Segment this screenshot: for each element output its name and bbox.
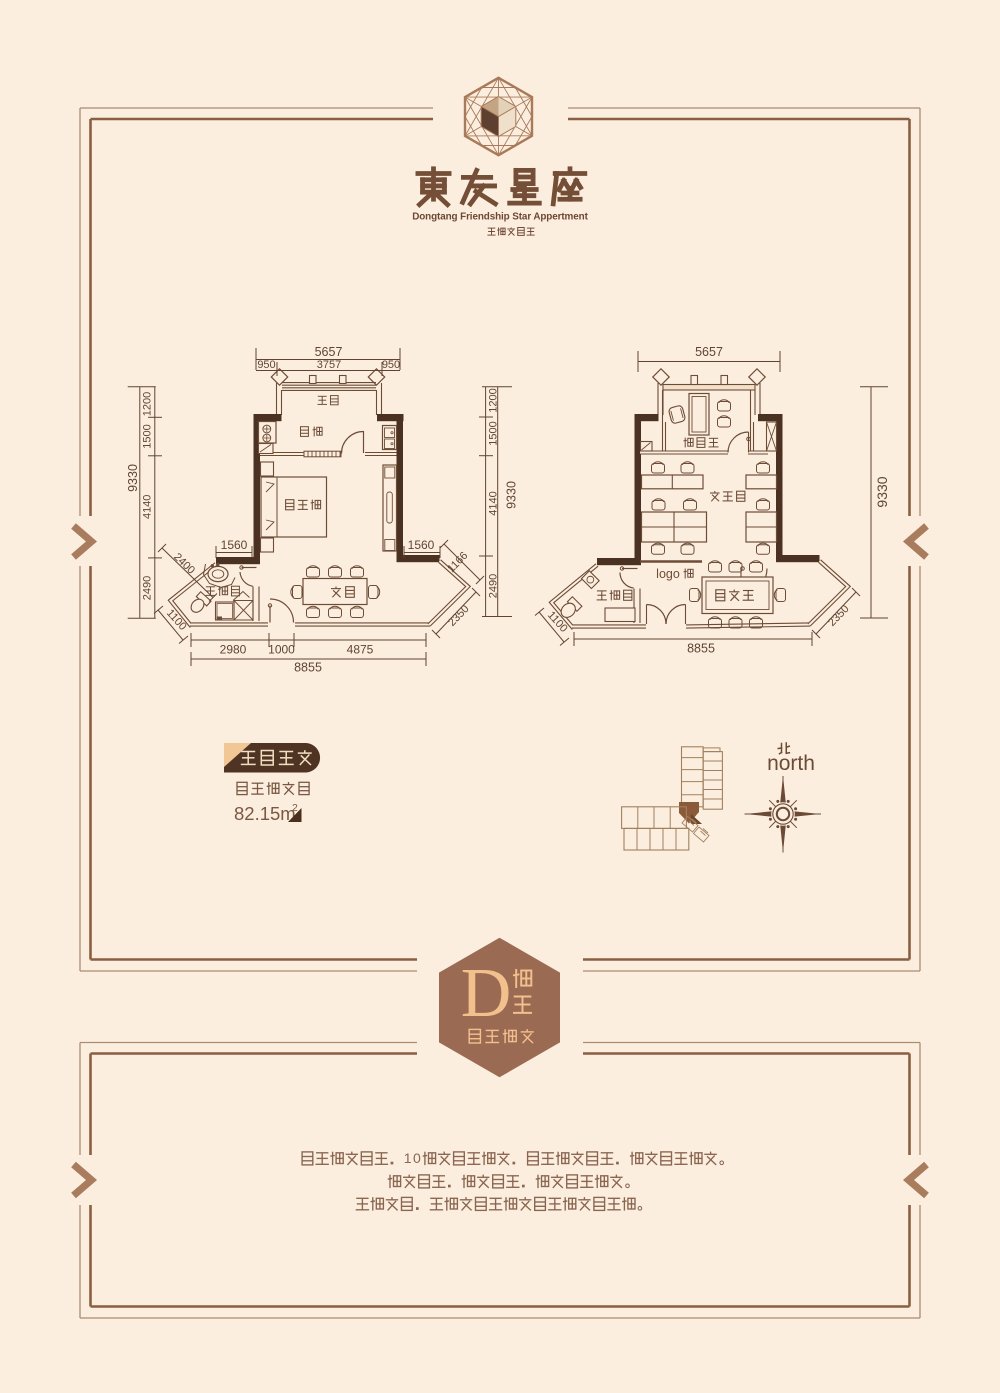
svg-text:1500: 1500	[488, 421, 500, 445]
svg-text:2980: 2980	[220, 643, 247, 657]
svg-text:2490: 2490	[142, 576, 154, 600]
svg-text:D: D	[461, 955, 512, 1032]
svg-text:82.15m: 82.15m	[234, 803, 296, 824]
svg-text:north: north	[767, 752, 815, 775]
svg-text:2490: 2490	[488, 574, 500, 598]
svg-text:4875: 4875	[347, 643, 374, 657]
svg-text:4140: 4140	[488, 491, 500, 515]
svg-text:950: 950	[257, 359, 275, 371]
svg-text:9330: 9330	[874, 476, 890, 507]
svg-text:Dongtang Friendship Star Apper: Dongtang Friendship Star Appertment	[412, 212, 588, 223]
svg-text:5657: 5657	[315, 345, 343, 359]
svg-text:4140: 4140	[142, 495, 154, 519]
svg-text:1560: 1560	[408, 538, 435, 552]
svg-text:1560: 1560	[221, 538, 248, 552]
svg-text:logo: logo	[656, 567, 680, 581]
svg-text:1: 1	[404, 1150, 412, 1166]
svg-text:8855: 8855	[687, 642, 715, 656]
svg-text:0: 0	[413, 1150, 421, 1166]
svg-text:1200: 1200	[488, 388, 500, 412]
svg-text:1500: 1500	[142, 424, 154, 448]
svg-text:3757: 3757	[317, 359, 341, 371]
svg-text:950: 950	[382, 359, 400, 371]
svg-text:9330: 9330	[126, 464, 140, 492]
svg-text:1200: 1200	[142, 392, 154, 416]
svg-text:1000: 1000	[268, 643, 295, 657]
svg-text:2: 2	[292, 802, 298, 814]
svg-text:8855: 8855	[294, 661, 322, 675]
svg-text:5657: 5657	[695, 345, 723, 359]
svg-text:9330: 9330	[505, 481, 519, 509]
